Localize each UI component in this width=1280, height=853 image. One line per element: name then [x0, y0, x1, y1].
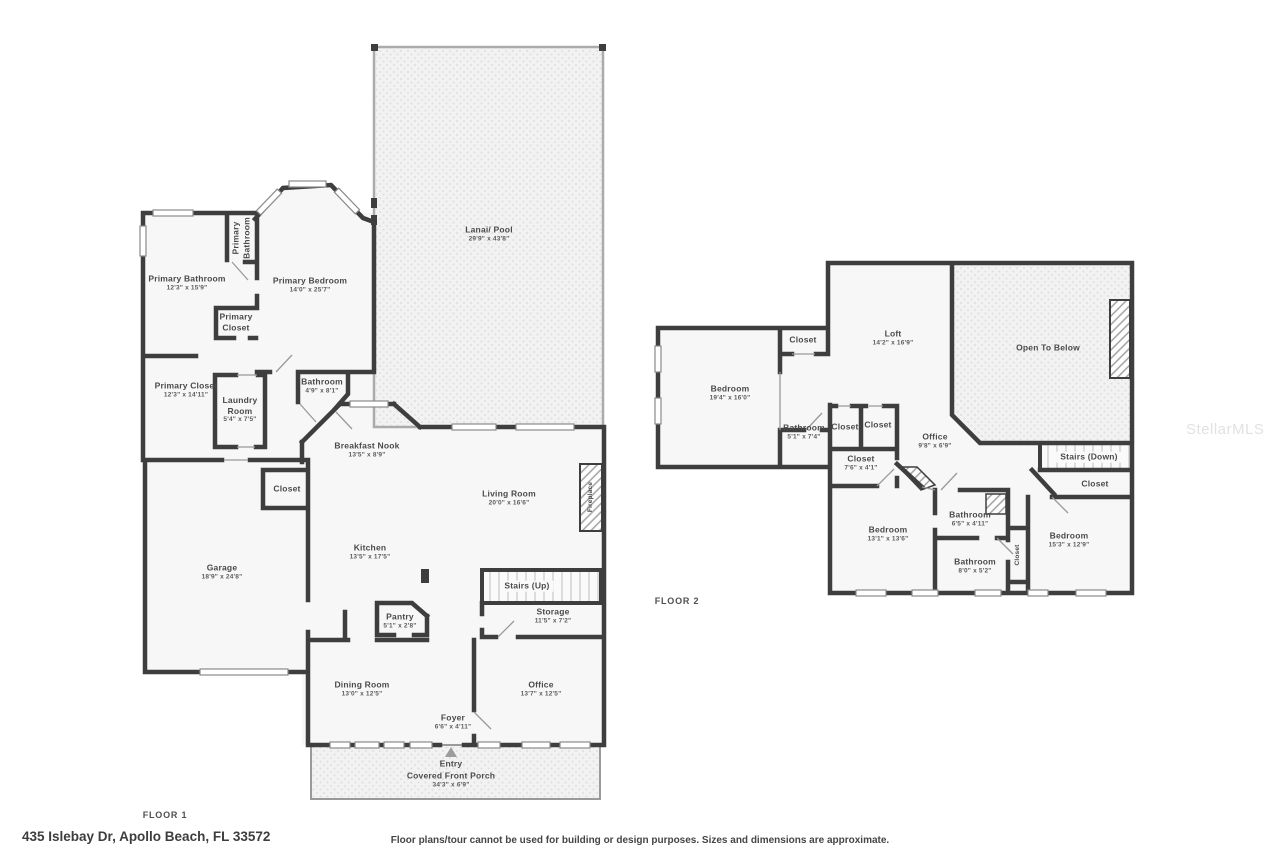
kitchen-island	[421, 569, 429, 583]
disclaimer-text: Floor plans/tour cannot be used for buil…	[391, 835, 889, 846]
room-label-office-1: Office 13'7" x 12'5"	[521, 679, 562, 698]
room-label-closet-b: Closet	[864, 420, 891, 431]
room-label-closet-a: Closet	[831, 422, 858, 433]
room-label-primary-closet: Primary Closet 12'3" x 14'11"	[155, 380, 218, 399]
room-label-bathroom-b: Bathroom 6'5" x 4'11"	[949, 509, 991, 528]
room-label-closet-e: Closet	[1014, 544, 1022, 565]
room-label-entry: Entry	[440, 759, 463, 770]
chimney-box	[1110, 300, 1130, 378]
room-label-closet-garage: Closet	[273, 484, 300, 495]
floor1-title: FLOOR 1	[143, 810, 188, 820]
room-label-primary-closet-small: Primary Closet	[211, 311, 261, 332]
room-label-stairs-up: Stairs (Up)	[500, 581, 553, 592]
room-label-laundry-room: Laundry Room 5'4" x 7'5"	[215, 395, 265, 425]
room-label-dining-room: Dining Room 13'0" x 12'5"	[334, 679, 389, 698]
room-label-fireplace: Fireplace	[587, 482, 595, 512]
property-address: 435 Islebay Dr, Apollo Beach, FL 33572	[22, 829, 270, 844]
room-label-bathroom-c: Bathroom 8'0" x 5'2"	[954, 556, 996, 575]
stellar-mls-watermark: StellarMLS	[1186, 421, 1264, 438]
room-label-kitchen: Kitchen 13'5" x 17'5"	[350, 542, 391, 561]
room-label-living-room: Living Room 20'0" x 16'6"	[482, 488, 536, 507]
room-label-loft: Loft 14'2" x 16'9"	[873, 328, 914, 347]
room-label-bedroom-c: Bedroom 15'3" x 12'9"	[1049, 530, 1090, 549]
room-label-open-to-below: Open To Below	[1016, 343, 1080, 354]
room-label-garage: Garage 18'9" x 24'8"	[202, 562, 243, 581]
room-label-bedroom-b: Bedroom 13'1" x 13'6"	[868, 524, 909, 543]
floor-plan-page: Lanai/ Pool 29'9" x 43'8" Primary Bathro…	[0, 0, 1280, 853]
room-label-bathroom-1: Bathroom 4'9" x 8'1"	[301, 376, 343, 395]
room-label-stairs-down: Stairs (Down)	[1056, 452, 1121, 463]
room-label-closet-d: Closet	[1081, 479, 1108, 490]
room-label-primary-bedroom: Primary Bedroom 14'0" x 25'7"	[273, 275, 347, 294]
room-label-covered-front-porch: Covered Front Porch 34'3" x 6'9"	[407, 770, 495, 789]
room-label-pantry: Pantry 5'1" x 2'8"	[383, 611, 416, 630]
room-label-bedroom-1: Bedroom 19'4" x 16'0"	[710, 383, 751, 402]
room-label-lanai-pool: Lanai/ Pool 29'9" x 43'8"	[465, 224, 513, 243]
floorplan-drawing	[0, 0, 1280, 853]
room-label-closet-top: Closet	[789, 335, 816, 346]
room-label-storage: Storage 11'5" x 7'2"	[535, 606, 572, 625]
room-label-closet-c: Closet 7'6" x 4'1"	[844, 453, 877, 472]
floor2-title: FLOOR 2	[655, 596, 700, 606]
room-label-breakfast-nook: Breakfast Nook 13'5" x 8'9"	[334, 440, 399, 459]
room-label-primary-bathroom-wc: Primary Bathroom	[230, 216, 251, 260]
room-label-bathroom-a: Bathroom 5'1" x 7'4"	[783, 422, 825, 441]
room-label-foyer: Foyer 6'6" x 4'11"	[435, 712, 472, 731]
room-label-primary-bathroom: Primary Bathroom 12'3" x 15'9"	[148, 273, 225, 292]
room-label-office-2: Office 9'8" x 6'9"	[918, 431, 951, 450]
